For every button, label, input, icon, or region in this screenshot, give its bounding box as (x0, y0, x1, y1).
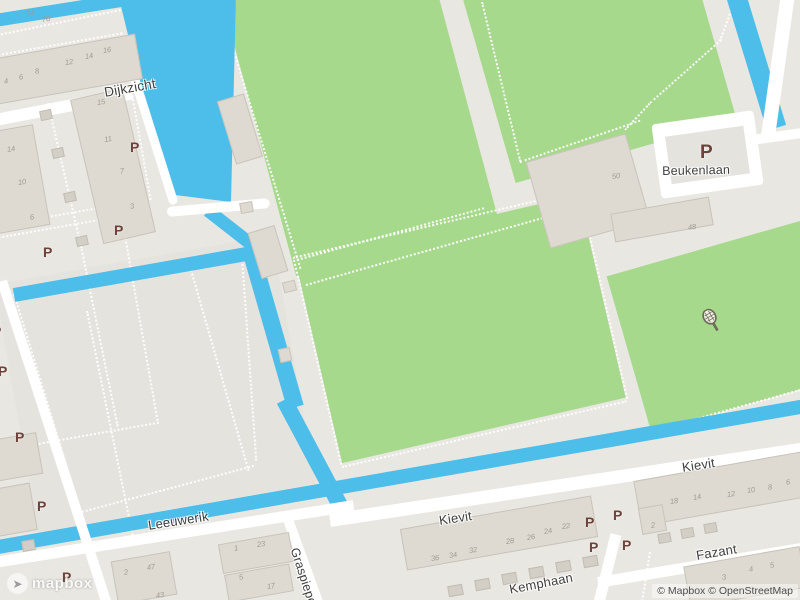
house-number: 15 (96, 97, 106, 107)
parking-icon: P (613, 508, 622, 522)
street-label-beukenlaan: Beukenlaan (662, 163, 730, 178)
parking-icon: P (15, 430, 24, 444)
house-number: 16 (102, 45, 112, 55)
shed (680, 527, 695, 539)
parking-icon: P (585, 515, 594, 529)
house-number: 34 (448, 550, 458, 560)
house-number: 14 (6, 144, 16, 154)
building (278, 347, 293, 363)
parking-icon: P (130, 140, 139, 154)
house-number: 17 (266, 581, 276, 591)
parking-icon: P (589, 540, 598, 554)
shed (657, 532, 672, 544)
map-layers: DijkzichtBeukenlaanLeeuwerikKievitKievit… (0, 0, 800, 600)
parking-icon: P (700, 143, 713, 162)
map-canvas[interactable]: DijkzichtBeukenlaanLeeuwerikKievitKievit… (0, 0, 800, 600)
mapbox-logo[interactable]: ➤ mapbox (7, 573, 93, 594)
mapbox-logo-icon: ➤ (7, 573, 28, 594)
canal (0, 0, 141, 28)
house-number: 48 (687, 222, 697, 232)
attribution[interactable]: © Mapbox © OpenStreetMap (652, 584, 798, 598)
house-number: 10 (17, 177, 27, 187)
house-number: 32 (468, 545, 478, 555)
house-number: 26 (526, 532, 536, 542)
house-number: 18 (669, 496, 679, 506)
house-number: 24 (543, 526, 553, 536)
building (111, 551, 178, 600)
house-number: 14 (692, 492, 702, 502)
house-number: 47 (146, 562, 156, 572)
shed (447, 584, 464, 597)
shed (474, 578, 491, 591)
building (239, 201, 254, 214)
shed (21, 539, 36, 552)
house-number: 14 (84, 51, 94, 61)
house-number: 76 (41, 14, 51, 24)
parking-icon: P (114, 223, 123, 237)
house-number: 22 (561, 521, 571, 531)
house-number: 36 (430, 553, 440, 563)
house-number: 23 (256, 539, 266, 549)
house-number: 12 (726, 489, 736, 499)
house-number: 43 (155, 590, 165, 600)
house-number: 28 (505, 536, 515, 546)
parking-icon: P (43, 245, 52, 259)
parking-icon: P (622, 538, 631, 552)
mapbox-logo-text: mapbox (32, 575, 93, 592)
house-number: 11 (103, 134, 112, 144)
parking-icon: P (37, 499, 46, 513)
building (282, 280, 297, 294)
house-number: 10 (746, 485, 756, 495)
shed (703, 522, 718, 534)
parking-icon: P (0, 324, 1, 338)
house-number: 74 (25, 8, 35, 18)
shed (582, 555, 599, 568)
house-number: 50 (611, 171, 621, 181)
parking-icon: P (0, 364, 7, 378)
house-number: 12 (64, 57, 74, 67)
